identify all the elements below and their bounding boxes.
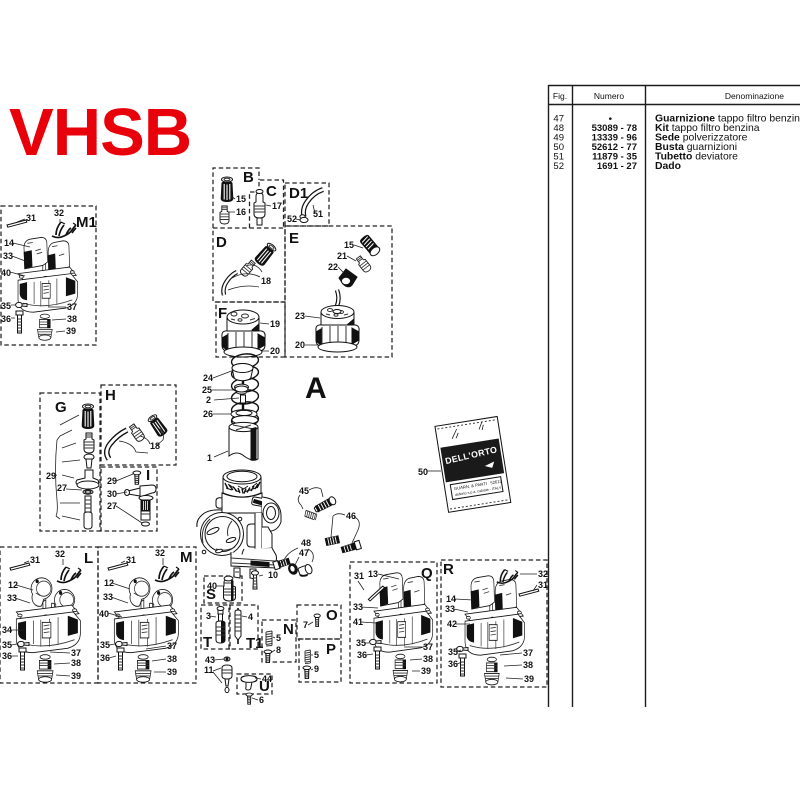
svg-text:44: 44	[262, 674, 272, 684]
svg-text:2: 2	[206, 395, 211, 405]
svg-text:7: 7	[303, 620, 308, 630]
svg-text:39: 39	[167, 667, 177, 677]
svg-text:D: D	[216, 234, 227, 251]
svg-text:5: 5	[314, 650, 319, 660]
svg-text:38: 38	[71, 658, 81, 668]
svg-text:31: 31	[538, 580, 548, 590]
svg-text:Denominazione: Denominazione	[725, 91, 784, 101]
svg-text:31: 31	[30, 555, 40, 565]
svg-text:37: 37	[523, 648, 533, 658]
svg-text:29: 29	[107, 476, 117, 486]
svg-text:33: 33	[445, 604, 455, 614]
svg-text:52: 52	[287, 214, 297, 224]
svg-text:T1: T1	[246, 635, 264, 652]
svg-text:43: 43	[205, 655, 215, 665]
svg-text:35: 35	[2, 640, 12, 650]
svg-text:42: 42	[447, 619, 457, 629]
svg-text:32: 32	[55, 549, 65, 559]
svg-text:32: 32	[155, 548, 165, 558]
svg-text:11: 11	[204, 665, 214, 675]
svg-text:37: 37	[71, 648, 81, 658]
svg-text:L: L	[84, 550, 93, 567]
svg-text:B: B	[243, 169, 254, 186]
svg-text:15: 15	[236, 194, 246, 204]
svg-text:50: 50	[418, 467, 428, 477]
svg-text:40: 40	[1, 268, 11, 278]
svg-text:G: G	[55, 399, 67, 416]
svg-text:36: 36	[357, 650, 367, 660]
svg-text:F: F	[218, 305, 227, 322]
svg-text:M1: M1	[76, 214, 97, 231]
svg-text:39: 39	[71, 671, 81, 681]
svg-text:C: C	[266, 183, 277, 200]
svg-text:36: 36	[100, 653, 110, 663]
svg-text:O: O	[326, 607, 338, 624]
svg-text:40: 40	[99, 609, 109, 619]
svg-text:24: 24	[203, 373, 213, 383]
svg-text:26: 26	[203, 409, 213, 419]
svg-text:27: 27	[107, 501, 117, 511]
svg-text:22: 22	[328, 262, 338, 272]
svg-text:47: 47	[299, 548, 309, 558]
svg-text:32: 32	[538, 569, 548, 579]
svg-text:35: 35	[1, 301, 11, 311]
svg-text:31: 31	[126, 555, 136, 565]
svg-text:37: 37	[423, 642, 433, 652]
svg-text:34: 34	[2, 625, 12, 635]
svg-text:D1: D1	[289, 185, 308, 202]
svg-text:21: 21	[337, 251, 347, 261]
svg-text:10: 10	[268, 570, 278, 580]
svg-text:31: 31	[26, 213, 36, 223]
svg-text:39: 39	[524, 674, 534, 684]
svg-text:Dado: Dado	[655, 161, 681, 172]
svg-text:P: P	[326, 641, 336, 658]
svg-text:Fig.: Fig.	[553, 91, 567, 101]
svg-text:30: 30	[107, 489, 117, 499]
svg-text:33: 33	[3, 251, 13, 261]
svg-text:38: 38	[523, 660, 533, 670]
svg-text:6: 6	[259, 695, 264, 705]
svg-text:48: 48	[301, 538, 311, 548]
svg-text:13: 13	[368, 569, 378, 579]
svg-text:8: 8	[276, 645, 281, 655]
svg-text:27: 27	[57, 483, 67, 493]
svg-text:46: 46	[346, 511, 356, 521]
svg-text:37: 37	[167, 641, 177, 651]
svg-text:23: 23	[295, 311, 305, 321]
svg-text:38: 38	[67, 314, 77, 324]
svg-text:20: 20	[295, 340, 305, 350]
svg-text:35: 35	[100, 640, 110, 650]
svg-text:A: A	[305, 372, 327, 405]
svg-text:37: 37	[67, 302, 77, 312]
svg-text:38: 38	[167, 654, 177, 664]
svg-text:18: 18	[150, 441, 160, 451]
svg-text:I: I	[146, 467, 150, 484]
svg-text:19: 19	[270, 319, 280, 329]
svg-text:20: 20	[270, 346, 280, 356]
svg-text:5: 5	[276, 633, 281, 643]
svg-text:E: E	[289, 230, 299, 247]
svg-text:Numero: Numero	[594, 91, 625, 101]
svg-text:32: 32	[54, 208, 64, 218]
svg-text:18: 18	[261, 276, 271, 286]
svg-text:35: 35	[356, 638, 366, 648]
svg-text:15: 15	[344, 240, 354, 250]
svg-text:36: 36	[1, 314, 11, 324]
svg-text:T: T	[203, 634, 212, 651]
svg-text:1: 1	[207, 453, 212, 463]
svg-text:36: 36	[2, 651, 12, 661]
svg-text:25: 25	[202, 385, 212, 395]
svg-text:14: 14	[446, 594, 456, 604]
svg-text:38: 38	[423, 654, 433, 664]
svg-text:4: 4	[248, 612, 253, 622]
svg-text:36: 36	[448, 659, 458, 669]
svg-text:45: 45	[299, 486, 309, 496]
svg-text:9: 9	[314, 664, 319, 674]
svg-text:40: 40	[207, 581, 217, 591]
svg-text:M: M	[180, 549, 193, 566]
svg-text:1691 - 27: 1691 - 27	[597, 161, 637, 172]
svg-text:17: 17	[272, 201, 282, 211]
svg-text:N: N	[283, 621, 294, 638]
svg-text:R: R	[443, 561, 454, 578]
svg-text:14: 14	[4, 238, 14, 248]
svg-text:16: 16	[236, 207, 246, 217]
svg-text:39: 39	[66, 326, 76, 336]
svg-text:H: H	[105, 387, 116, 404]
svg-text:31: 31	[354, 571, 364, 581]
svg-text:52: 52	[553, 161, 564, 172]
svg-text:39: 39	[421, 666, 431, 676]
